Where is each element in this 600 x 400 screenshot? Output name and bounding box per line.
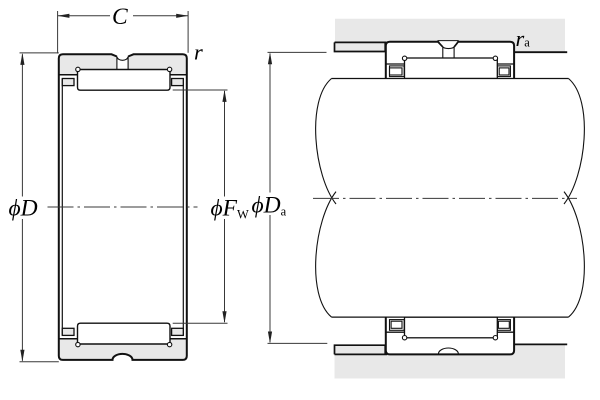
svg-text:ϕD: ϕD: [9, 196, 38, 222]
svg-text:C: C: [112, 4, 128, 30]
svg-text:r: r: [194, 40, 203, 65]
